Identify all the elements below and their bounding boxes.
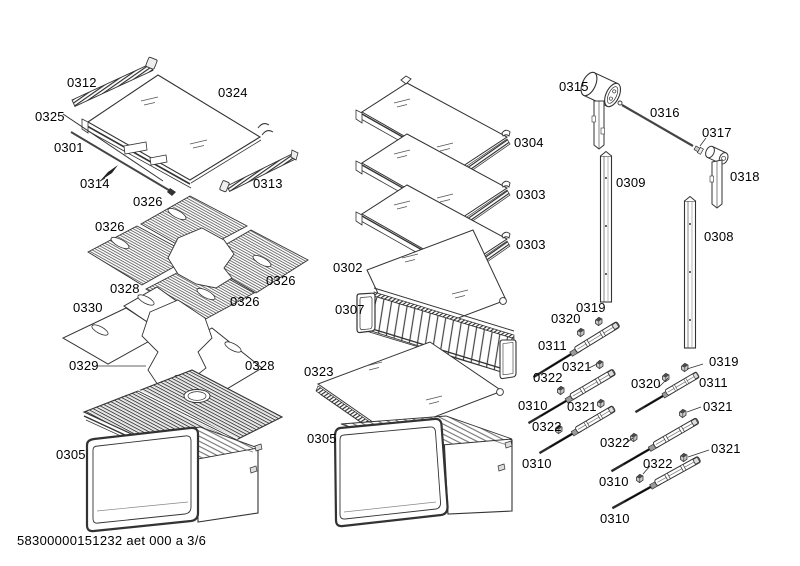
- part-label-0315-22: 0315: [559, 80, 589, 94]
- part-label-0325-2: 0325: [35, 110, 65, 124]
- part-label-0305-14: 0305: [56, 448, 86, 462]
- part-label-0319-37: 0319: [709, 355, 739, 369]
- part-label-0310-36: 0310: [522, 457, 552, 471]
- part-label-0328-13: 0328: [245, 359, 275, 373]
- part-label-0321-34: 0321: [567, 400, 597, 414]
- part-label-0310-44: 0310: [599, 475, 629, 489]
- part-label-0307-19: 0307: [335, 303, 365, 317]
- part-label-0321-40: 0321: [703, 400, 733, 414]
- drawer-0305-middle: [335, 416, 512, 526]
- part-label-0328-10: 0328: [110, 282, 140, 296]
- clip-0321-left-1: [597, 360, 604, 368]
- part-label-0326-9: 0326: [230, 295, 260, 309]
- part-label-0309-26: 0309: [616, 176, 646, 190]
- part-label-0320-29: 0320: [551, 312, 581, 326]
- roller-bracket-0318: [704, 145, 730, 208]
- clip-0320-left: [578, 328, 585, 336]
- part-label-0310-33: 0310: [518, 399, 548, 413]
- part-label-0305-21: 0305: [307, 432, 337, 446]
- part-label-0301-3: 0301: [54, 141, 84, 155]
- part-label-0322-41: 0322: [600, 436, 630, 450]
- part-label-0314-4: 0314: [80, 177, 110, 191]
- vertical-rail-0309: [601, 152, 612, 303]
- clip-0319-left: [596, 317, 603, 325]
- part-label-0322-43: 0322: [643, 457, 673, 471]
- part-label-0317-24: 0317: [702, 126, 732, 140]
- part-label-0312-0: 0312: [67, 76, 97, 90]
- clip-0322-right-1: [631, 433, 638, 441]
- clip-0322-left-1: [558, 386, 565, 394]
- part-label-0326-7: 0326: [95, 220, 125, 234]
- part-label-0322-32: 0322: [533, 371, 563, 385]
- part-label-0326-8: 0326: [266, 274, 296, 288]
- mesh-panel-group-0326: [88, 196, 308, 322]
- part-label-0321-31: 0321: [562, 360, 592, 374]
- part-label-0303-16: 0303: [516, 188, 546, 202]
- diagram-page: 0312032403250301031403130326032603260326…: [0, 0, 800, 566]
- part-label-0329-12: 0329: [69, 359, 99, 373]
- document-number: 58300000151232 aet 000 a 3/6: [17, 533, 206, 548]
- clip-0322-right-2: [637, 474, 644, 482]
- part-label-0308-27: 0308: [704, 230, 734, 244]
- part-label-0303-17: 0303: [516, 238, 546, 252]
- clip-0321-right-2: [681, 453, 688, 461]
- part-label-0311-30: 0311: [538, 339, 567, 353]
- clip-0321-right-1: [680, 409, 687, 417]
- part-label-0323-20: 0323: [304, 365, 334, 379]
- part-label-0313-5: 0313: [253, 177, 283, 191]
- part-label-0324-1: 0324: [218, 86, 248, 100]
- part-label-0321-42: 0321: [711, 442, 741, 456]
- part-label-0302-18: 0302: [333, 261, 363, 275]
- vertical-rail-0308: [685, 197, 696, 349]
- connector-0317: [694, 145, 704, 154]
- part-label-0330-11: 0330: [73, 301, 103, 315]
- part-label-0310-45: 0310: [600, 512, 630, 526]
- part-label-0318-25: 0318: [730, 170, 760, 184]
- clip-0321-left-2: [598, 399, 605, 407]
- part-label-0320-38: 0320: [631, 377, 661, 391]
- part-label-0316-23: 0316: [650, 106, 680, 120]
- part-label-0311-39: 0311: [699, 376, 728, 390]
- part-label-0304-15: 0304: [514, 136, 544, 150]
- part-label-0326-6: 0326: [133, 195, 163, 209]
- part-label-0322-35: 0322: [532, 420, 562, 434]
- drawer-0305-left: [87, 427, 262, 531]
- clip-0319-right: [682, 363, 689, 371]
